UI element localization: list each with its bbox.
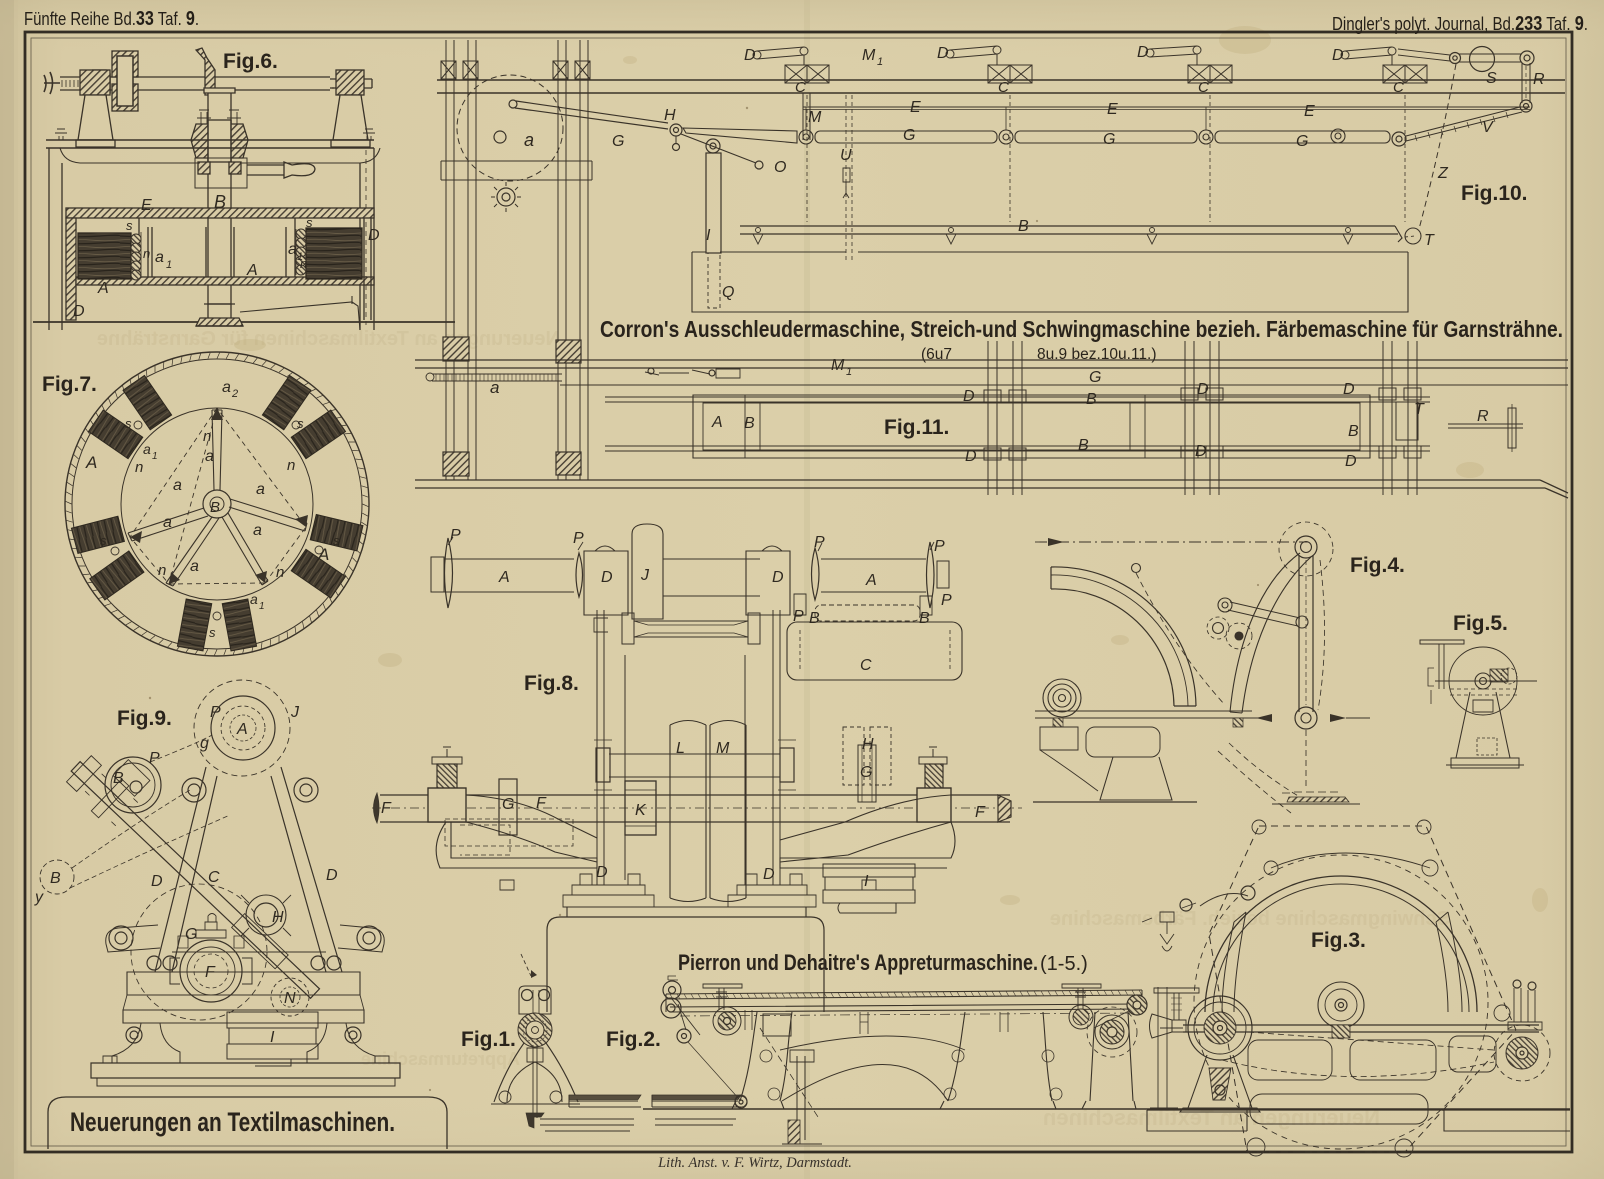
svg-text:D: D [1137,44,1149,61]
svg-text:n: n [135,459,143,476]
svg-text:Fig.8.: Fig.8. [524,672,579,695]
svg-text:R: R [1477,408,1489,425]
svg-text:B: B [809,610,820,627]
svg-text:G: G [860,764,872,781]
svg-text:Lith. Anst. v. F. Wirtz, Darms: Lith. Anst. v. F. Wirtz, Darmstadt. [657,1155,852,1171]
svg-text:D: D [73,303,85,320]
svg-text:Fig.6.: Fig.6. [223,50,278,73]
svg-text:n: n [158,562,166,579]
svg-text:A: A [317,545,329,564]
svg-text:Fig.1.: Fig.1. [461,1028,516,1051]
svg-text:E: E [910,99,921,116]
svg-text:n: n [287,457,295,474]
svg-text:1: 1 [166,259,172,271]
svg-text:Fig.5.: Fig.5. [1453,612,1508,635]
svg-text:Dingler's polyt. Journal, Bd.2: Dingler's polyt. Journal, Bd.233 Taf. 9. [1332,13,1588,35]
svg-text:a: a [205,448,214,465]
svg-text:Neuerungen an Textilmaschinen: Neuerungen an Textilmaschinen für Garnst… [97,328,560,350]
svg-text:S: S [1486,70,1497,87]
svg-text:F: F [381,800,392,817]
svg-text:a: a [524,130,534,150]
svg-text:Appreturmaschine: Appreturmaschine [361,1049,520,1069]
svg-text:y: y [34,889,44,906]
svg-text:1: 1 [259,601,265,612]
svg-text:s: s [100,533,107,548]
svg-text:K: K [635,802,647,819]
svg-text:Z: Z [1437,165,1449,182]
svg-text:G: G [502,796,514,813]
svg-text:M: M [716,740,730,757]
svg-text:I: I [706,227,711,244]
svg-text:P: P [573,530,584,547]
svg-text:G: G [185,926,197,943]
svg-text:T: T [1414,401,1425,418]
svg-text:A: A [711,414,723,431]
svg-text:V: V [1482,119,1494,136]
svg-text:J: J [640,567,650,584]
svg-text:P: P [210,704,221,721]
svg-text:H: H [272,909,284,926]
svg-text:a: a [253,522,262,539]
svg-text:T: T [1424,232,1435,249]
svg-text:Fig.3.: Fig.3. [1311,929,1366,952]
svg-text:M: M [808,109,822,126]
svg-text:1: 1 [846,366,852,378]
svg-text:I: I [270,1029,275,1046]
svg-text:s: s [209,625,216,640]
svg-text:G: G [903,127,915,144]
svg-text:s: s [333,533,340,548]
svg-text:n: n [276,564,284,581]
svg-text:a: a [155,249,164,266]
svg-text:Fig.4.: Fig.4. [1350,554,1405,577]
svg-text:2: 2 [231,388,238,400]
svg-text:M: M [831,357,845,374]
svg-text:B: B [210,499,220,516]
svg-text:B: B [1348,423,1359,440]
svg-text:s: s [125,416,132,431]
svg-text:G: G [1089,369,1101,386]
svg-text:(1-5.): (1-5.) [1040,953,1088,975]
svg-text:a: a [288,241,297,258]
svg-text:P: P [934,538,945,555]
svg-text:B: B [1018,218,1029,235]
svg-text:Corron's Ausschleudermaschine,: Corron's Ausschleudermaschine, Streich-u… [600,316,1563,342]
svg-text:D: D [326,867,338,884]
svg-text:A: A [85,453,97,472]
svg-text:1: 1 [877,56,883,68]
svg-text:1: 1 [297,251,303,263]
svg-text:P: P [149,750,160,767]
svg-text:F: F [975,804,986,821]
svg-text:C: C [998,79,1009,96]
svg-text:B: B [919,610,930,627]
svg-text:P: P [450,527,461,544]
svg-text:C: C [1393,79,1404,96]
svg-text:B: B [1078,437,1089,454]
svg-text:B: B [214,192,226,212]
svg-text:a: a [490,378,499,397]
svg-text:C: C [860,657,872,674]
svg-text:D: D [1197,381,1209,398]
svg-text:Fig.11.: Fig.11. [884,416,949,439]
svg-text:s: s [306,215,313,230]
svg-text:Fünfte Reihe Bd.33 Taf. 9.: Fünfte Reihe Bd.33 Taf. 9. [24,8,199,30]
svg-text:R: R [1533,71,1545,88]
svg-text:P: P [793,608,804,625]
svg-text:B: B [1086,391,1097,408]
svg-text:U: U [840,147,852,164]
svg-text:D: D [744,47,756,64]
svg-text:D: D [1343,381,1355,398]
svg-text:F: F [536,795,547,812]
svg-text:G: G [1103,131,1115,148]
svg-text:A: A [236,721,248,738]
svg-text:a: a [143,441,151,457]
svg-text:J: J [290,704,300,721]
svg-text:G: G [1296,133,1308,150]
svg-text:B: B [744,415,755,432]
svg-text:a: a [173,477,182,494]
svg-text:N: N [284,990,296,1007]
svg-text:a: a [222,379,231,396]
svg-text:D: D [1332,47,1344,64]
svg-text:1: 1 [152,451,158,462]
svg-text:a: a [250,591,258,607]
svg-text:g: g [200,735,209,752]
svg-text:H: H [862,736,874,753]
svg-text:Fig.10.: Fig.10. [1461,182,1528,205]
svg-text:P: P [941,592,952,609]
svg-text:D: D [596,864,608,881]
svg-text:Fig.9.: Fig.9. [117,707,172,730]
svg-text:n: n [143,246,150,261]
svg-text:Fig.7.: Fig.7. [42,373,97,396]
svg-text:M: M [862,47,876,64]
svg-text:I: I [864,873,869,890]
svg-text:s: s [297,416,304,431]
svg-text:D: D [151,873,163,890]
svg-text:D: D [1195,443,1207,460]
svg-text:H: H [664,107,676,124]
svg-text:C: C [795,79,806,96]
svg-text:L: L [676,740,685,757]
svg-text:D: D [965,448,977,465]
svg-text:D: D [1345,453,1357,470]
svg-text:n: n [203,428,211,445]
svg-text:D: D [601,569,613,586]
svg-text:Q: Q [722,284,734,301]
svg-text:D: D [368,227,380,244]
svg-text:D: D [772,569,784,586]
svg-text:E: E [1107,101,1118,118]
svg-text:O: O [774,159,786,176]
svg-text:E: E [1304,103,1315,120]
svg-text:D: D [937,45,949,62]
svg-text:s: s [126,218,133,233]
svg-text:Pierron und Dehaitre's Appretu: Pierron und Dehaitre's Appreturmaschine. [678,950,1038,975]
svg-text:G: G [612,133,624,150]
svg-text:E: E [141,197,152,214]
svg-text:D: D [763,866,775,883]
svg-text:Fig.2.: Fig.2. [606,1028,661,1051]
svg-text:Neuerungen an Textilmaschinen.: Neuerungen an Textilmaschinen. [70,1107,395,1137]
svg-text:a: a [163,514,172,531]
svg-text:A: A [498,569,510,586]
svg-text:a: a [256,481,265,498]
svg-text:B: B [113,770,124,787]
svg-text:a: a [190,558,199,575]
svg-text:C: C [1198,79,1209,96]
svg-text:A: A [246,262,258,279]
svg-text:B: B [50,870,61,887]
svg-text:A: A [865,572,877,589]
svg-text:P: P [814,534,825,551]
svg-text:C: C [208,869,220,886]
svg-text:D: D [963,388,975,405]
svg-text:A: A [97,280,109,297]
svg-text:F: F [205,964,216,981]
